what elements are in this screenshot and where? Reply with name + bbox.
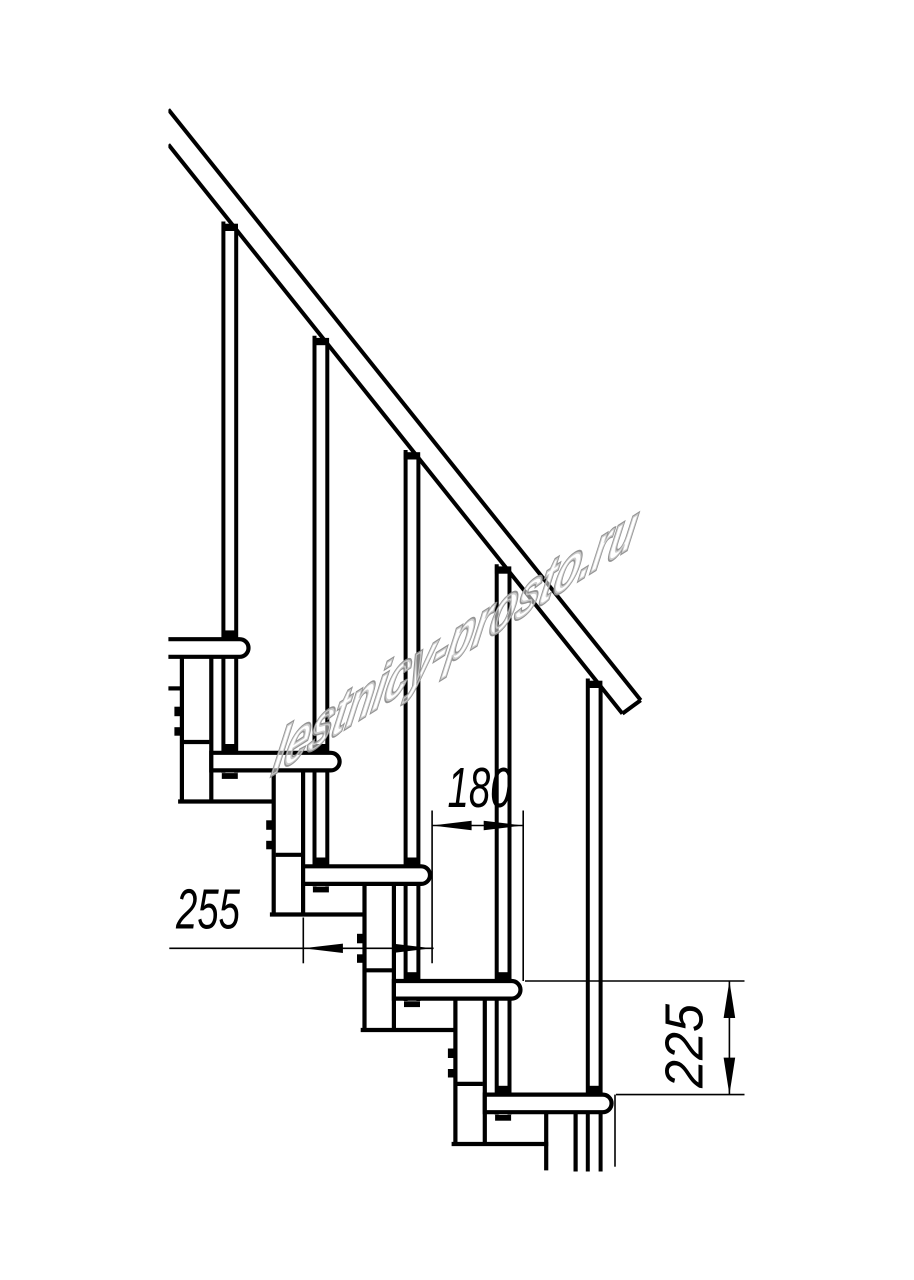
- svg-text:225: 225: [655, 1003, 715, 1089]
- svg-text:180: 180: [448, 756, 512, 820]
- svg-text:255: 255: [175, 878, 240, 942]
